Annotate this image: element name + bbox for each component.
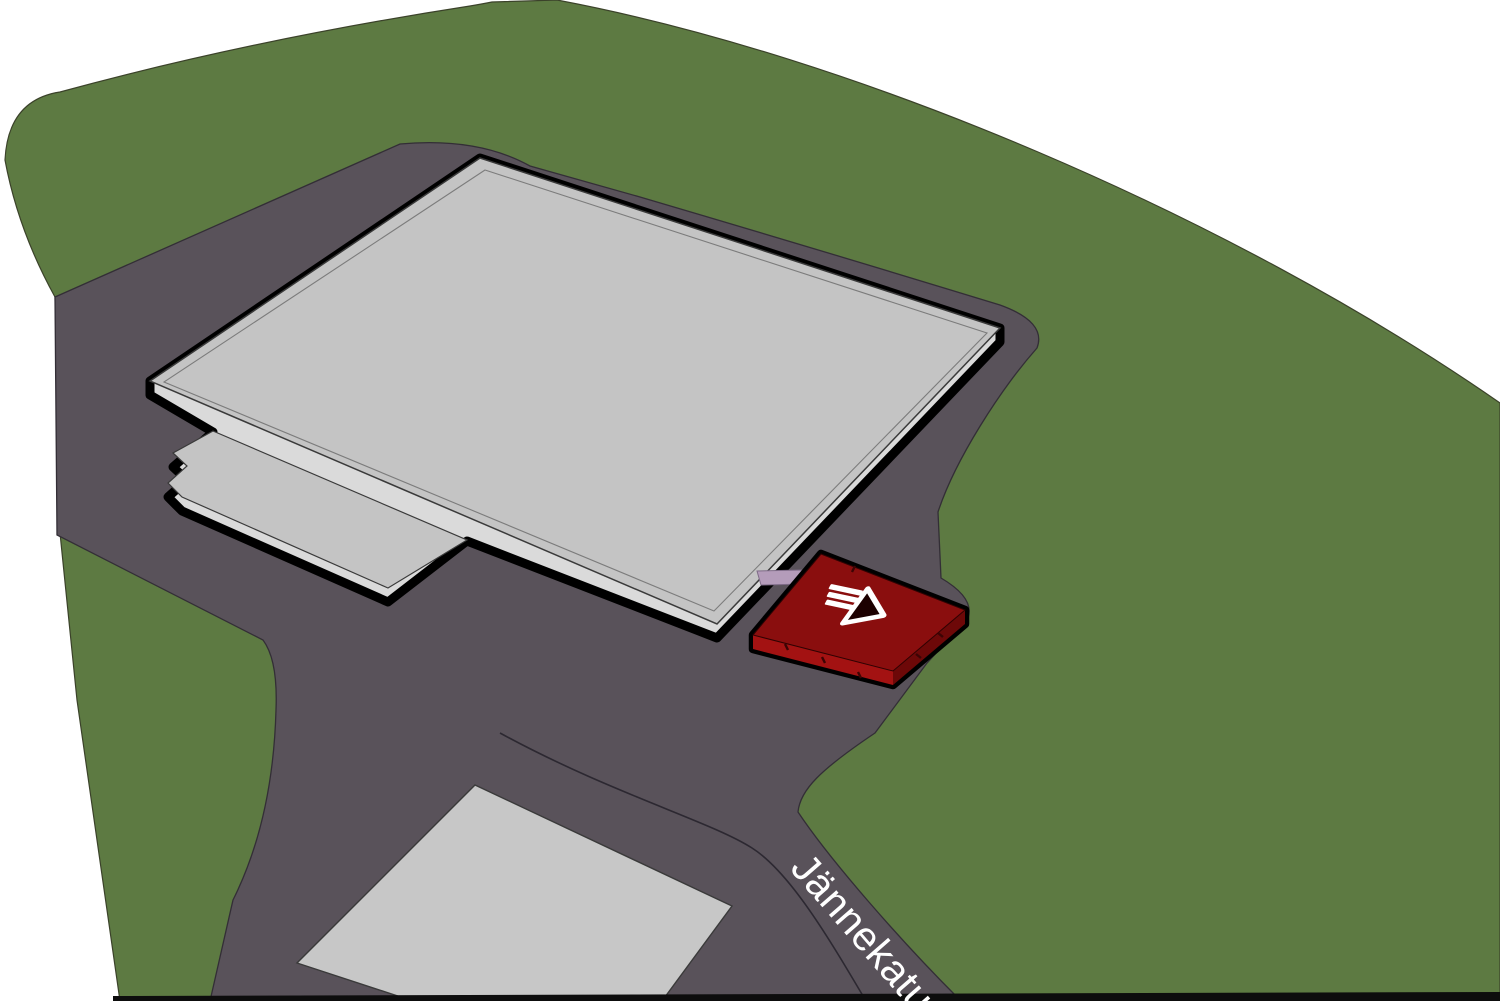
site-map: Jännekatu — [0, 0, 1500, 1001]
site-map-canvas[interactable]: Jännekatu — [0, 0, 1500, 1001]
